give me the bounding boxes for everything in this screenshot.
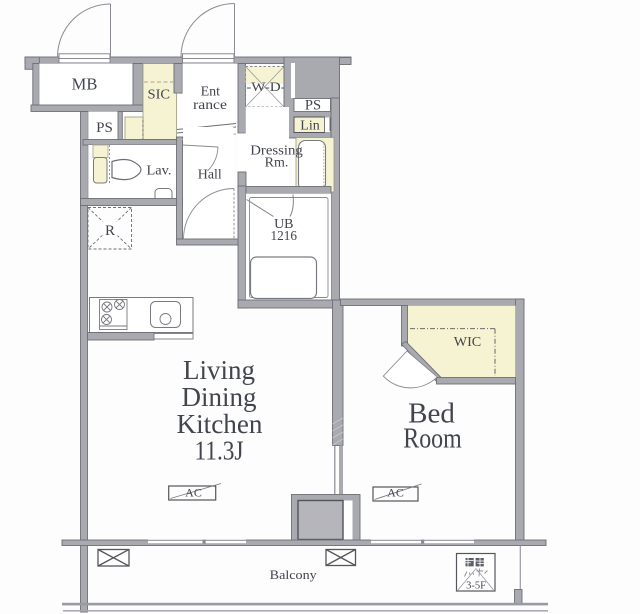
svg-text:Room: Room (403, 423, 462, 455)
svg-text:-W-D-: -W-D- (246, 79, 286, 94)
svg-text:SIC: SIC (148, 88, 171, 103)
svg-text:R: R (105, 223, 115, 239)
svg-text:PS: PS (305, 98, 321, 114)
svg-text:Hall: Hall (198, 168, 222, 183)
svg-text:Kitchen: Kitchen (177, 409, 263, 439)
svg-text:Dining: Dining (181, 382, 256, 412)
svg-text:rance: rance (193, 98, 227, 113)
svg-text:Balcony: Balcony (270, 568, 318, 582)
svg-text:Lav.: Lav. (147, 164, 172, 179)
svg-text:PS: PS (96, 120, 113, 136)
svg-text:Living: Living (183, 355, 255, 385)
svg-text:Lin: Lin (300, 119, 319, 134)
svg-text:AC: AC (185, 486, 202, 500)
svg-text:11.3J: 11.3J (195, 436, 244, 466)
svg-text:AC: AC (387, 486, 404, 500)
svg-text:3-5F: 3-5F (466, 581, 486, 592)
svg-text:WIC: WIC (454, 334, 482, 349)
svg-text:Rm.: Rm. (265, 156, 289, 171)
svg-text:MB: MB (72, 75, 98, 94)
svg-text:1216: 1216 (271, 228, 298, 243)
